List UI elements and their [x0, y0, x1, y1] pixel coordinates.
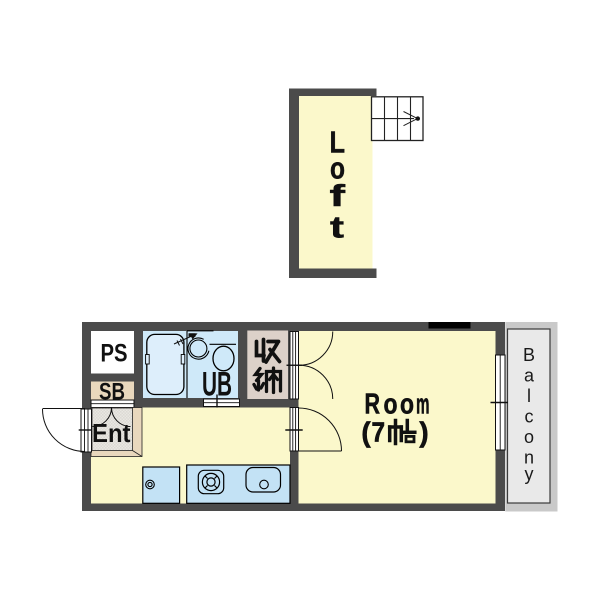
svg-text:7: 7	[372, 417, 386, 448]
svg-text:PS: PS	[101, 340, 128, 368]
svg-text:): )	[420, 417, 429, 448]
svg-text:y: y	[525, 464, 534, 484]
svg-text:Ent: Ent	[92, 418, 131, 448]
svg-text:B: B	[523, 345, 535, 365]
svg-text:o: o	[400, 389, 414, 421]
svg-text:f: f	[330, 178, 347, 213]
svg-text:c: c	[525, 407, 534, 427]
svg-text:o: o	[384, 389, 398, 421]
svg-text:(: (	[362, 417, 372, 448]
svg-text:l: l	[527, 386, 531, 406]
svg-text:a: a	[524, 366, 535, 386]
svg-text:o: o	[524, 427, 534, 447]
svg-text:t: t	[330, 210, 344, 245]
